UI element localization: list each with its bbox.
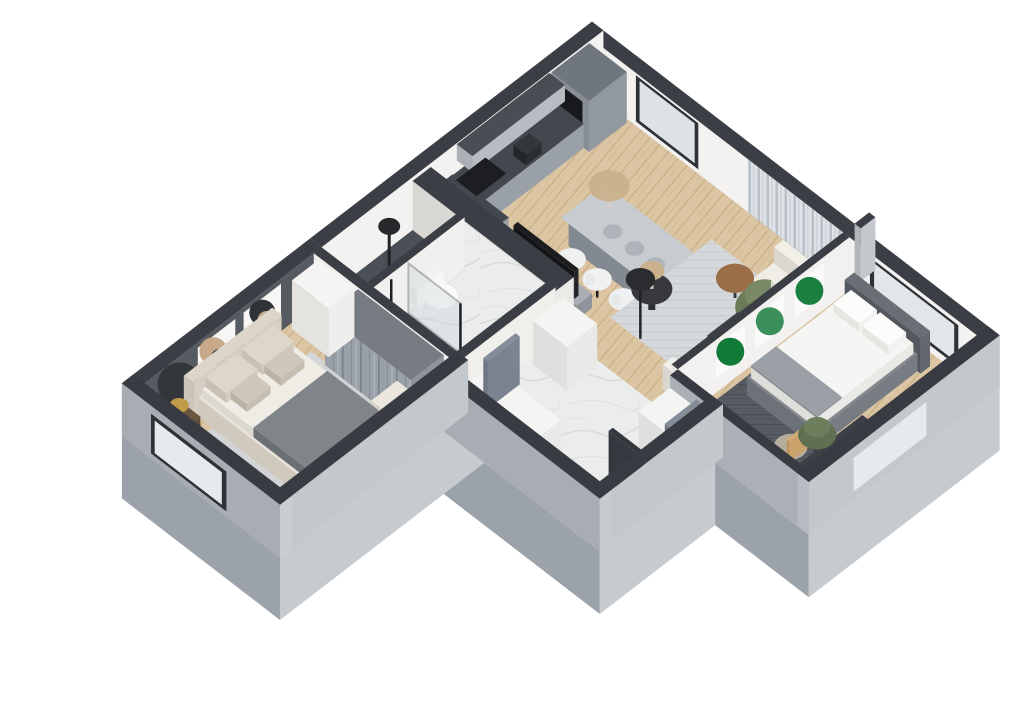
artwork-green-circle	[716, 338, 744, 366]
artwork-green-circle	[795, 277, 823, 305]
bar-stool-back	[585, 274, 594, 285]
bar-stool-back	[611, 294, 620, 305]
wall-fin	[861, 217, 876, 281]
floor-lamp-shade	[626, 268, 655, 291]
wall-master-southwest	[280, 496, 291, 558]
pampas-grass	[589, 170, 630, 202]
wall-bedroom2-southeast	[797, 473, 808, 535]
floorplan-figure	[0, 0, 1024, 721]
plate	[625, 241, 644, 256]
artwork-green-circle	[756, 307, 784, 335]
plant	[804, 417, 830, 437]
shower-glass-frame	[459, 303, 462, 353]
wall-fin	[855, 224, 861, 282]
nook-lamp-shade	[378, 218, 400, 235]
tv	[574, 269, 578, 299]
apartment-3d-floorplan	[0, 0, 1024, 721]
bedroom2-headboard	[921, 331, 930, 374]
wall-hall-southwest	[600, 490, 611, 552]
plate	[603, 224, 622, 239]
